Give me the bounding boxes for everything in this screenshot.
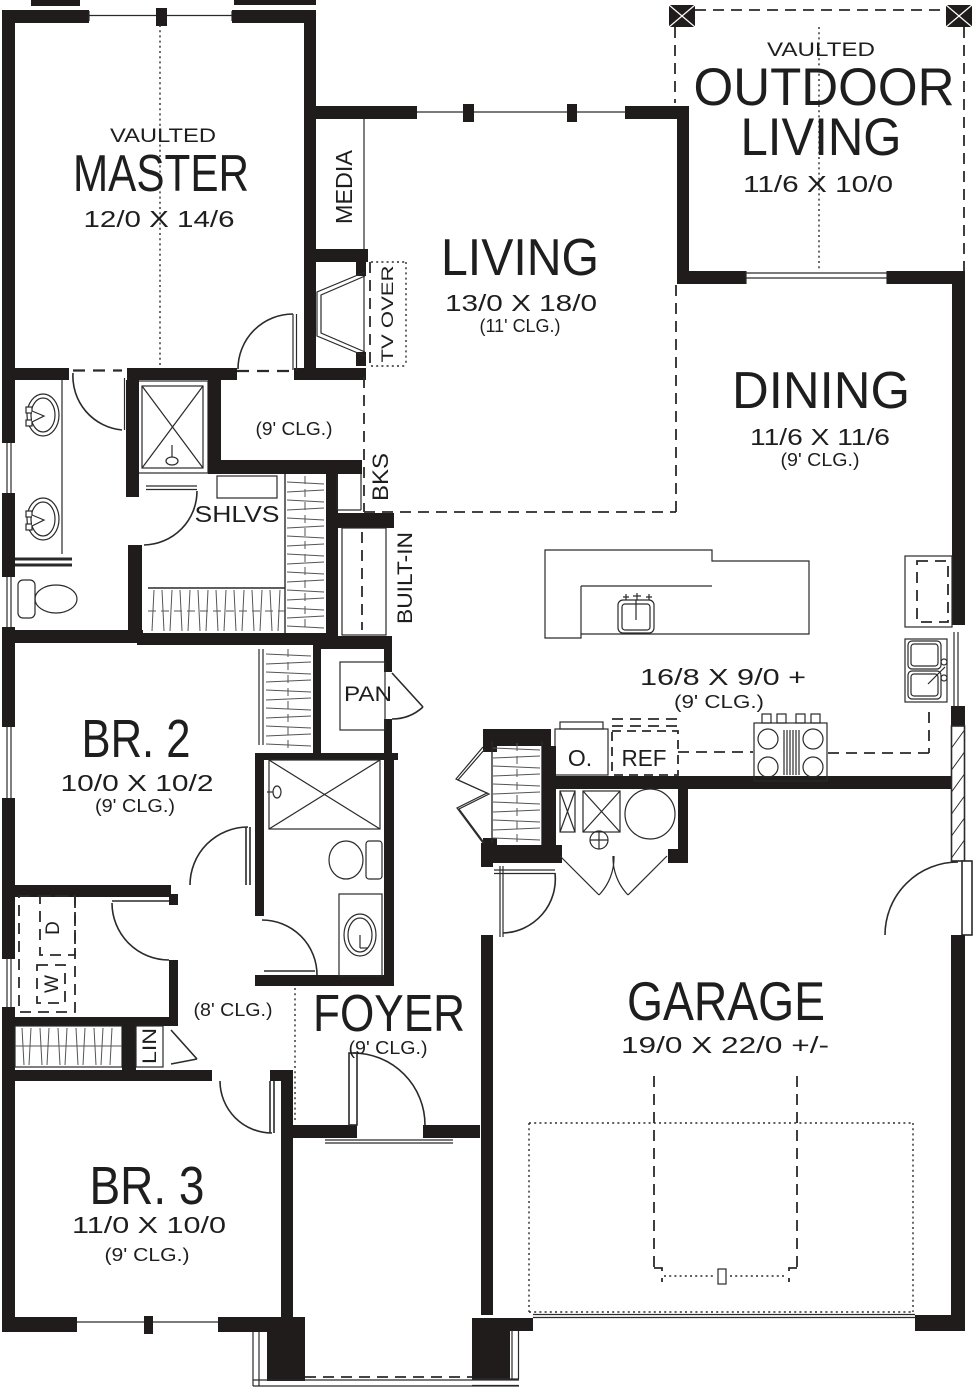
- svg-text:(9' CLG.): (9' CLG.): [349, 1038, 428, 1058]
- svg-text:BUILT-IN: BUILT-IN: [394, 532, 417, 624]
- svg-text:FOYER: FOYER: [313, 985, 465, 1043]
- svg-text:(9' CLG.): (9' CLG.): [781, 450, 860, 470]
- svg-text:11/0 X 10/0: 11/0 X 10/0: [72, 1212, 226, 1238]
- svg-text:LIN: LIN: [140, 1028, 161, 1064]
- svg-text:LIVING: LIVING: [441, 229, 599, 287]
- svg-text:10/0 X 10/2: 10/0 X 10/2: [61, 770, 214, 796]
- svg-text:13/0 X 18/0: 13/0 X 18/0: [445, 290, 597, 316]
- svg-text:PAN: PAN: [344, 683, 392, 706]
- svg-text:(9' CLG.): (9' CLG.): [256, 419, 333, 439]
- svg-text:DINING: DINING: [732, 362, 910, 420]
- svg-text:TV OVER: TV OVER: [378, 266, 397, 363]
- svg-text:19/0 X 22/0 +/-: 19/0 X 22/0 +/-: [621, 1032, 829, 1058]
- svg-text:BKS: BKS: [368, 453, 393, 501]
- svg-text:11/6 X 11/6: 11/6 X 11/6: [750, 424, 890, 450]
- svg-text:VAULTED: VAULTED: [110, 125, 216, 147]
- svg-text:(9' CLG.): (9' CLG.): [105, 1245, 190, 1265]
- svg-text:BR. 3: BR. 3: [90, 1156, 205, 1216]
- svg-text:(11' CLG.): (11' CLG.): [480, 316, 561, 336]
- svg-text:11/6 X 10/0: 11/6 X 10/0: [743, 171, 893, 197]
- svg-text:(9' CLG.): (9' CLG.): [674, 692, 764, 712]
- svg-text:16/8 X 9/0 +: 16/8 X 9/0 +: [640, 664, 806, 690]
- svg-text:REF: REF: [622, 745, 667, 771]
- svg-text:LIVING: LIVING: [741, 108, 902, 167]
- svg-text:BR. 2: BR. 2: [82, 709, 191, 769]
- svg-text:D: D: [43, 921, 64, 935]
- svg-text:W: W: [42, 975, 63, 993]
- svg-text:GARAGE: GARAGE: [627, 970, 825, 1032]
- svg-text:O.: O.: [568, 745, 592, 771]
- svg-text:SHLVS: SHLVS: [195, 501, 280, 527]
- svg-text:(8' CLG.): (8' CLG.): [194, 1000, 273, 1020]
- svg-text:MEDIA: MEDIA: [331, 149, 357, 224]
- svg-text:MASTER: MASTER: [73, 145, 249, 203]
- svg-text:12/0 X 14/6: 12/0 X 14/6: [84, 206, 235, 232]
- svg-text:(9' CLG.): (9' CLG.): [95, 796, 175, 816]
